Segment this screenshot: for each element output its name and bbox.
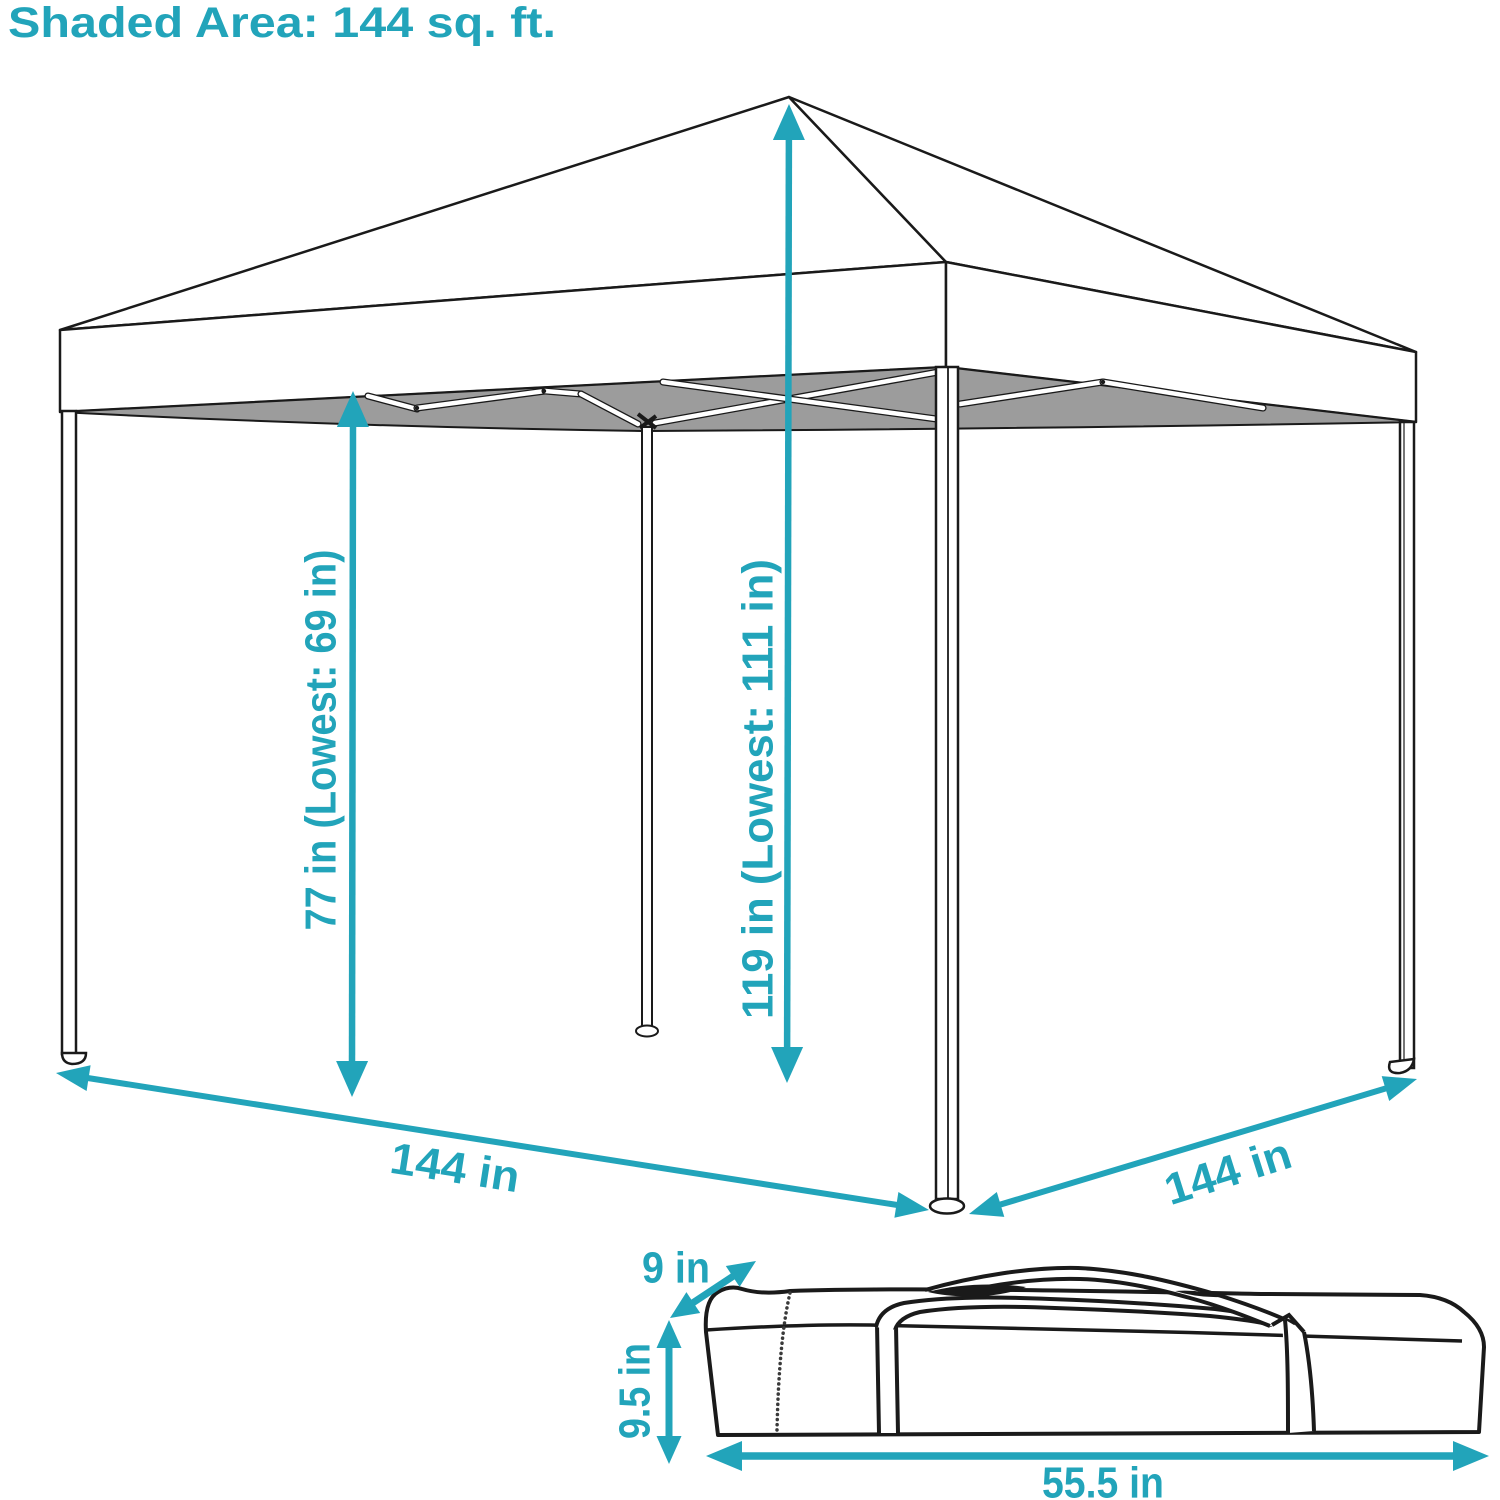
svg-text:Shaded Area: 144 sq. ft.: Shaded Area: 144 sq. ft. [8,0,556,47]
svg-text:9.5 in: 9.5 in [611,1343,660,1439]
svg-text:119 in (Lowest: 111 in): 119 in (Lowest: 111 in) [734,559,783,1019]
svg-text:77 in (Lowest: 69 in): 77 in (Lowest: 69 in) [297,550,346,931]
svg-text:9 in: 9 in [642,1244,710,1293]
svg-text:55.5 in: 55.5 in [1042,1459,1164,1500]
